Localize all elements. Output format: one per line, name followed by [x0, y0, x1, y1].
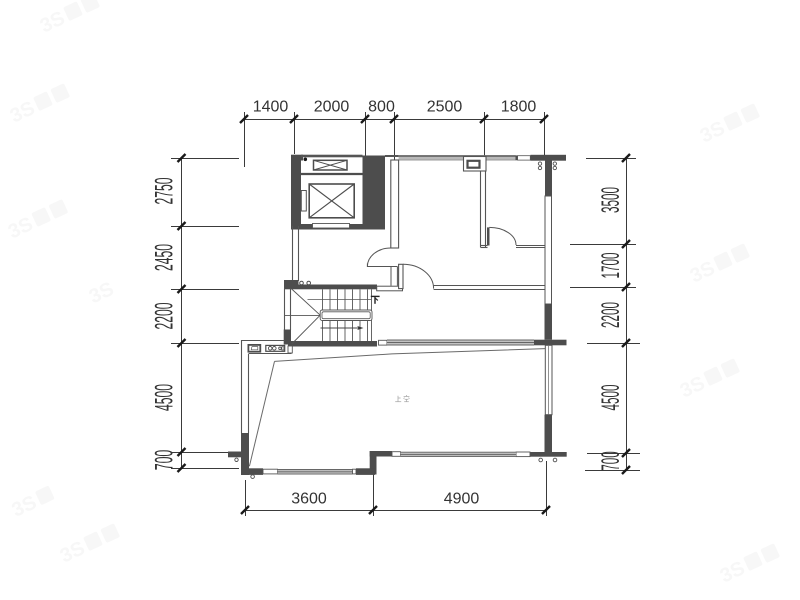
svg-text:4500: 4500 [150, 384, 178, 411]
svg-text:2500: 2500 [427, 99, 463, 116]
svg-text:4900: 4900 [444, 491, 480, 508]
svg-text:2200: 2200 [597, 302, 625, 328]
svg-text:2450: 2450 [150, 244, 178, 271]
svg-text:1800: 1800 [501, 99, 537, 116]
svg-text:3600: 3600 [291, 491, 327, 508]
svg-text:2750: 2750 [150, 178, 178, 205]
svg-text:3500: 3500 [597, 187, 625, 213]
svg-text:1700: 1700 [597, 253, 625, 279]
svg-text:1400: 1400 [253, 99, 289, 116]
svg-text:700: 700 [150, 450, 178, 471]
svg-text:700: 700 [597, 451, 625, 471]
svg-text:4500: 4500 [597, 385, 625, 411]
svg-text:2000: 2000 [314, 99, 350, 116]
svg-text:2200: 2200 [150, 303, 178, 330]
svg-text:800: 800 [368, 99, 395, 116]
